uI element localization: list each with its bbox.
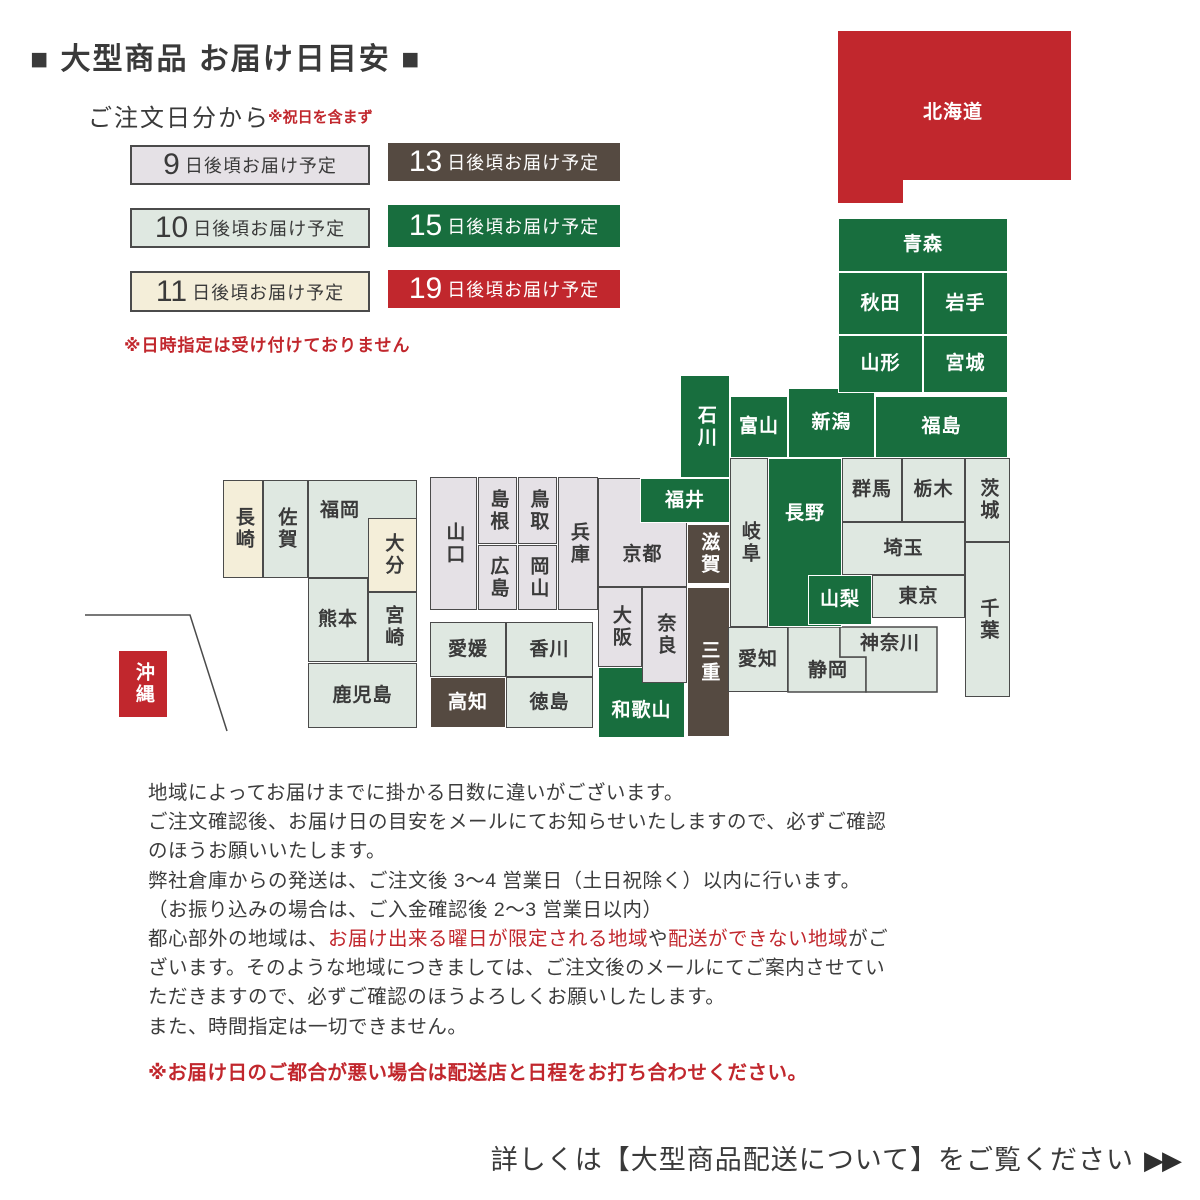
- pref-okayama: 岡山: [518, 545, 557, 610]
- pref-mie: 三重: [687, 587, 730, 737]
- pref-kochi-label: 高知: [448, 692, 488, 714]
- pref-kochi: 高知: [430, 677, 506, 728]
- pref-osaka: 大阪: [598, 587, 642, 667]
- pref-kumamoto-label: 熊本: [318, 609, 358, 631]
- pref-yamaguchi: 山口: [430, 477, 477, 610]
- pref-hyogo-label: 兵庫: [567, 522, 589, 566]
- pref-iwate: 岩手: [923, 272, 1008, 335]
- pref-osaka-label: 大阪: [609, 605, 631, 649]
- note-line-1: 地域によってお届けまでに掛かる日数に違いがございます。: [148, 779, 1108, 808]
- pref-tochigi-label: 栃木: [913, 479, 953, 501]
- pref-yamaguchi-label: 山口: [443, 522, 465, 566]
- pref-ibaraki: 茨城: [965, 458, 1010, 542]
- pref-saga-label: 佐賀: [275, 507, 297, 551]
- pref-chiba: 千葉: [965, 542, 1010, 697]
- pref-tokushima-label: 徳島: [529, 692, 569, 714]
- pref-hiroshima-label: 広島: [487, 556, 509, 600]
- pref-tokyo: 東京: [872, 575, 965, 618]
- pref-yamanashi: 山梨: [808, 575, 872, 625]
- pref-tokushima: 徳島: [506, 677, 593, 728]
- pref-ehime: 愛媛: [430, 622, 506, 677]
- pref-niigata-label: 新潟: [811, 412, 851, 434]
- pref-fukui: 福井: [640, 478, 730, 523]
- pref-chiba-label: 千葉: [977, 598, 999, 642]
- pref-fukushima: 福島: [875, 396, 1008, 458]
- pref-nara-label: 奈良: [654, 613, 676, 657]
- pref-tottori-label: 鳥取: [527, 489, 549, 533]
- pref-aichi-label: 愛知: [738, 649, 778, 671]
- note-line-8: ただきますので、必ずご確認のほうよろしくお願いしたします。: [148, 983, 1108, 1012]
- pref-fukui-label: 福井: [665, 490, 705, 512]
- pref-okayama-label: 岡山: [527, 556, 549, 600]
- pref-toyama-label: 富山: [739, 416, 779, 438]
- pref-aomori-label: 青森: [903, 234, 943, 256]
- pref-kagoshima: 鹿児島: [308, 663, 417, 728]
- pref-yamagata: 山形: [838, 335, 923, 393]
- pref-oita-label: 大分: [382, 533, 404, 577]
- pref-tottori: 鳥取: [518, 477, 557, 544]
- pref-iwate-label: 岩手: [945, 293, 985, 315]
- pref-mie-label: 三重: [698, 640, 720, 684]
- pref-ibaraki-label: 茨城: [977, 478, 999, 522]
- pref-okinawa: 沖縄: [118, 650, 168, 718]
- pref-nagasaki: 長崎: [223, 480, 263, 578]
- pref-miyazaki-label: 宮崎: [382, 605, 404, 649]
- pref-kagawa: 香川: [506, 622, 593, 677]
- note-line-6: 都心部外の地域は、お届け出来る曜日が限定される地域や配送ができない地域がご: [148, 925, 1108, 954]
- pref-oita: 大分: [368, 518, 417, 592]
- pref-saga: 佐賀: [263, 480, 308, 578]
- pref-shimane-label: 島根: [487, 489, 509, 533]
- pref-ishikawa: 石川: [680, 375, 730, 478]
- pref-nagasaki-label: 長崎: [232, 507, 254, 551]
- pref-saitama: 埼玉: [842, 522, 965, 575]
- pref-ishikawa-label: 石川: [694, 405, 716, 449]
- pref-tochigi: 栃木: [902, 458, 965, 522]
- pref-tokyo-label: 東京: [898, 586, 938, 608]
- note-line-2: ご注文確認後、お届け日の目安をメールにてお知らせいたしますので、必ずご確認: [148, 808, 1108, 837]
- pref-gunma-label: 群馬: [852, 479, 892, 501]
- pref-saitama-label: 埼玉: [883, 538, 923, 560]
- delivery-notes: 地域によってお届けまでに掛かる日数に違いがございます。ご注文確認後、お届け日の目…: [148, 779, 1108, 1042]
- pref-fukushima-label: 福島: [921, 416, 961, 438]
- note-line-7: ざいます。そのような地域につきましては、ご注文後のメールにてご案内させてい: [148, 954, 1108, 983]
- pref-yamagata-label: 山形: [860, 353, 900, 375]
- pref-shiga: 滋賀: [687, 524, 730, 584]
- pref-gifu: 岐阜: [730, 458, 768, 627]
- details-cta-text: 詳しくは【大型商品配送について】をご覧ください: [491, 1145, 1134, 1175]
- pref-hiroshima: 広島: [478, 545, 517, 610]
- pref-yamanashi-label: 山梨: [820, 589, 860, 611]
- pref-gifu-label: 岐阜: [738, 521, 760, 565]
- pref-miyagi: 宮城: [923, 335, 1008, 393]
- pref-gunma: 群馬: [842, 458, 902, 522]
- pref-miyagi-label: 宮城: [945, 353, 985, 375]
- pref-toyama: 富山: [730, 396, 788, 458]
- note-line-4: 弊社倉庫からの発送は、ご注文後 3〜4 営業日（土日祝除く）以内に行います。: [148, 867, 1108, 896]
- pref-okinawa-label: 沖縄: [132, 662, 154, 706]
- pref-kagawa-label: 香川: [529, 639, 569, 661]
- pref-miyazaki: 宮崎: [368, 592, 417, 662]
- pref-nara: 奈良: [642, 587, 687, 683]
- pref-shiga-label: 滋賀: [698, 532, 720, 576]
- double-arrow-icon: ▶▶: [1144, 1145, 1180, 1175]
- large-item-delivery-infographic: { "title": "■ 大型商品 お届け日目安 ■", "legend": …: [0, 0, 1200, 1200]
- pref-hyogo: 兵庫: [558, 477, 598, 610]
- delivery-warn-note: ※お届け日のご都合が悪い場合は配送店と日程をお打ち合わせください。: [148, 1056, 807, 1085]
- pref-kagoshima-label: 鹿児島: [332, 685, 392, 707]
- details-cta: 詳しくは【大型商品配送について】をご覧ください▶▶: [0, 1138, 1180, 1177]
- pref-aichi: 愛知: [728, 627, 788, 692]
- note-line-5: （お振り込みの場合は、ご入金確認後 2〜3 営業日以内）: [148, 896, 1108, 925]
- pref-akita-label: 秋田: [860, 293, 900, 315]
- pref-akita: 秋田: [838, 272, 923, 335]
- pref-hokkaido: [838, 31, 1071, 203]
- pref-ehime-label: 愛媛: [448, 639, 488, 661]
- note-line-9: また、時間指定は一切できません。: [148, 1013, 1108, 1042]
- pref-shimane: 島根: [478, 477, 517, 544]
- pref-niigata: 新潟: [788, 388, 875, 458]
- pref-aomori: 青森: [838, 218, 1008, 272]
- note-line-3: のほうお願いいたします。: [148, 837, 1108, 866]
- pref-kumamoto: 熊本: [308, 578, 368, 662]
